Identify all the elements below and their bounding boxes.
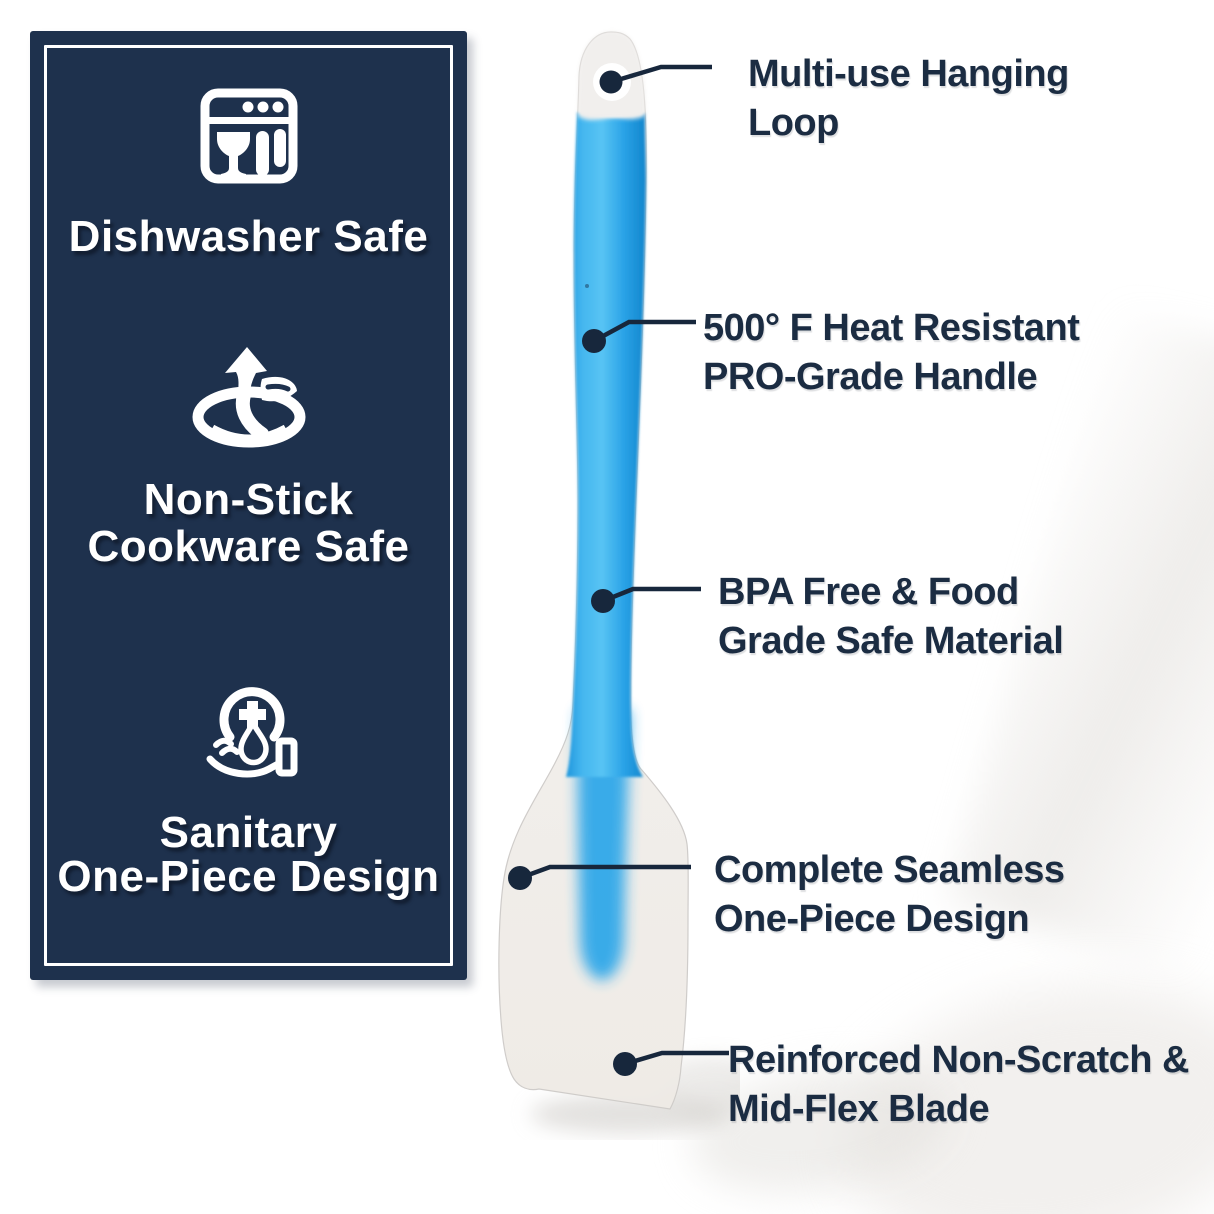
spatula-image [480, 20, 740, 1140]
callout-heat-resistant: 500° F Heat Resistant PRO-Grade Handle [703, 304, 1079, 402]
callout-text: Complete Seamless [714, 846, 1065, 895]
spatula-handle [566, 112, 646, 777]
handle-speck [585, 284, 589, 288]
feature-label-one-piece-design: One-Piece Design [30, 852, 467, 902]
callout-hanging-loop: Multi-use Hanging Loop [748, 50, 1069, 148]
callout-text: Grade Safe Material [718, 617, 1063, 666]
callout-text: Multi-use Hanging [748, 50, 1069, 99]
feature-label-dishwasher-safe: Dishwasher Safe [30, 212, 467, 262]
callout-text: BPA Free & Food [718, 568, 1063, 617]
callout-bpa-free: BPA Free & Food Grade Safe Material [718, 568, 1063, 666]
callout-text: 500° F Heat Resistant [703, 304, 1079, 353]
callout-text: Loop [748, 99, 1069, 148]
feature-label-cookware-safe: Cookware Safe [30, 522, 467, 572]
feature-label-sanitary: Sanitary [30, 808, 467, 858]
hanging-loop-hole [593, 63, 631, 101]
feature-panel: Dishwasher Safe Non-Stick Cookware Safe … [30, 31, 467, 980]
callout-seamless-design: Complete Seamless One-Piece Design [714, 846, 1065, 944]
callout-text: PRO-Grade Handle [703, 353, 1079, 402]
callout-reinforced-blade: Reinforced Non-Scratch & Mid-Flex Blade [728, 1036, 1189, 1134]
callout-text: Mid-Flex Blade [728, 1085, 1189, 1134]
dishwasher-icon [199, 87, 299, 185]
callout-text: One-Piece Design [714, 895, 1065, 944]
non-stick-icon [190, 343, 308, 449]
callout-text: Reinforced Non-Scratch & [728, 1036, 1189, 1085]
product-infographic: Dishwasher Safe Non-Stick Cookware Safe … [0, 0, 1214, 1214]
feature-label-non-stick: Non-Stick [30, 475, 467, 525]
sanitary-icon [192, 681, 306, 789]
